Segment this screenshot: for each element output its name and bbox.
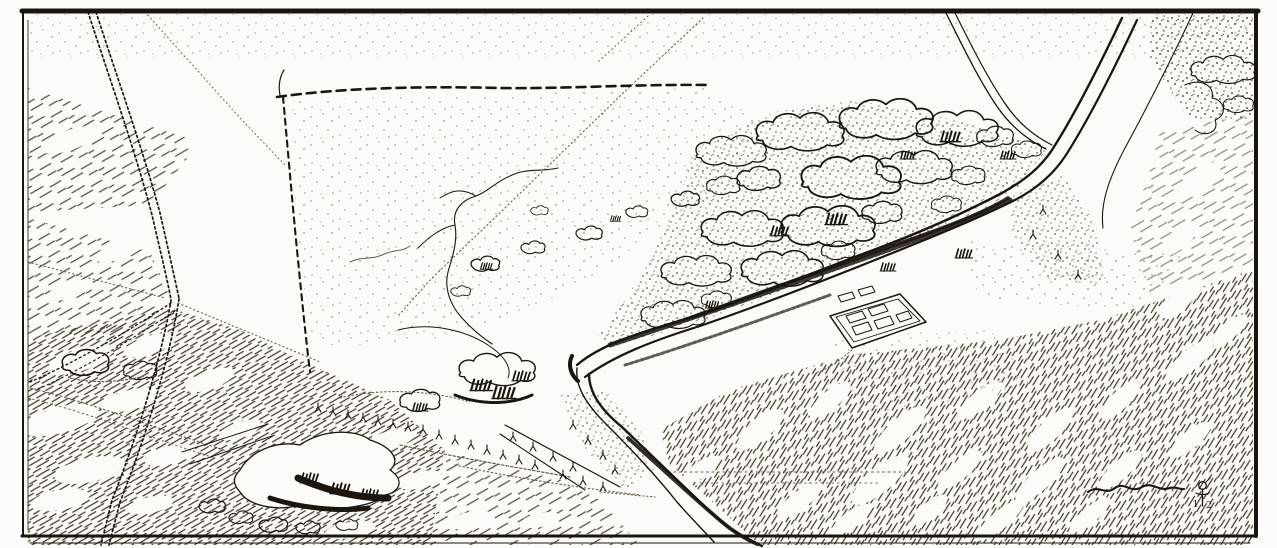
monogram-digit-left: 1 bbox=[1193, 499, 1199, 510]
aerial-landscape-drawing: 1 2 bbox=[0, 0, 1277, 548]
drawing-canvas: 1 2 bbox=[0, 0, 1277, 548]
monogram-digit-right: 2 bbox=[1206, 500, 1212, 511]
